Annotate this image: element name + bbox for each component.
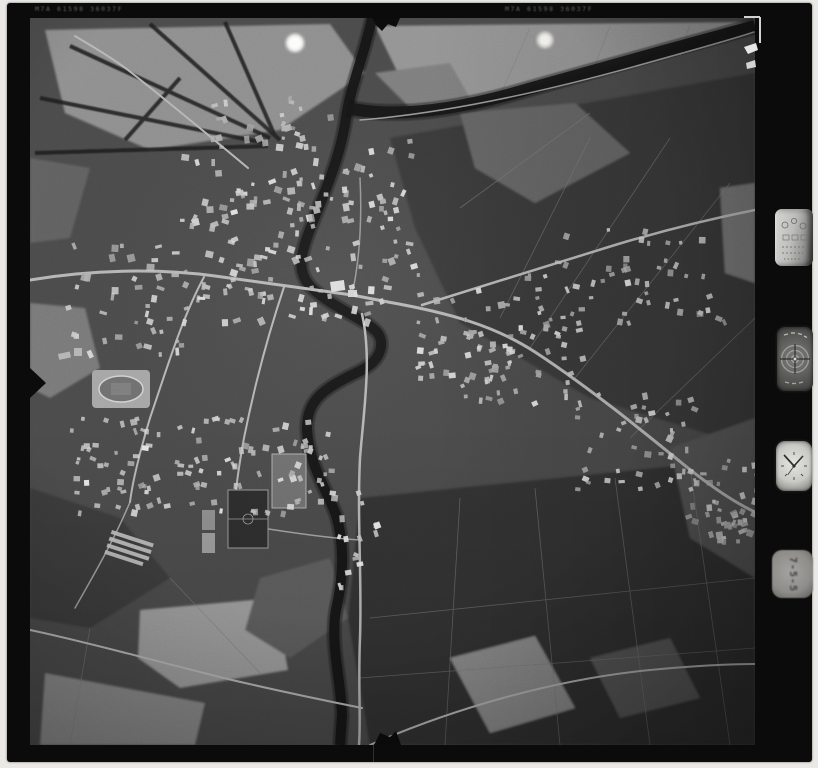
aerial-photo-canvas: [30, 18, 755, 745]
film-grain: [30, 18, 755, 745]
pointer-mark-lower: [746, 60, 756, 69]
frame-counter-value: 7-5-5: [787, 556, 798, 591]
data-panel-dials: [775, 209, 813, 266]
scanned-film-page: M7A 61598 36037F M7A 61598 36037F: [0, 0, 818, 768]
film-edge-code-right: M7A 61598 36037F: [505, 5, 593, 13]
film-scratch-mark: [373, 745, 374, 762]
frame-counter-instrument: 7-5-5: [772, 550, 813, 598]
corner-bracket-mark: [744, 17, 760, 43]
corner-fiducial-marks: [736, 15, 770, 75]
data-panel-instrument: [775, 209, 813, 266]
pointer-mark-upper: [744, 43, 758, 54]
clock-face: [776, 441, 812, 491]
level-dial-instrument: [777, 327, 813, 391]
film-edge-code-left: M7A 61598 36037F: [35, 5, 123, 13]
film-frame: M7A 61598 36037F M7A 61598 36037F: [7, 3, 812, 762]
aerial-photograph: [30, 18, 755, 745]
level-dial-face: [777, 327, 813, 391]
clock-instrument: [776, 441, 812, 491]
